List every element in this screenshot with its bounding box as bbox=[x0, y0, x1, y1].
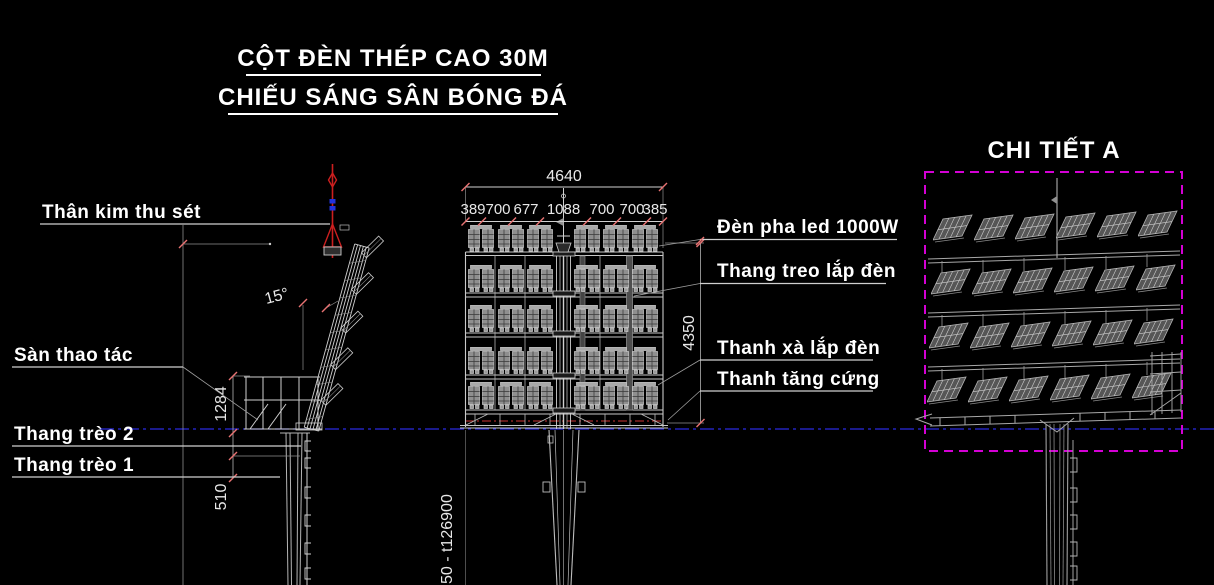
detail-panel-grid bbox=[927, 211, 1177, 404]
dim-seg-700a: 700 bbox=[485, 201, 510, 218]
dim-seg-677: 677 bbox=[513, 201, 538, 218]
label-hanging-ladder: Thang treo lắp đèn bbox=[717, 260, 896, 282]
front-elevation-view: 4640 389 700 677 1088 700 700 385 bbox=[439, 168, 899, 585]
cad-drawing-page: CỘT ĐÈN THÉP CAO 30M CHIẾU SÁNG SÂN BÓNG… bbox=[0, 0, 1214, 585]
dim-510: 510 bbox=[213, 484, 230, 511]
dim-1284: 1284 bbox=[213, 386, 230, 422]
dim-4350: 4350 bbox=[681, 315, 698, 351]
detail-a-view: CHI TIẾT A bbox=[916, 136, 1182, 585]
left-elevation-view: 1284 510 15° Thân kim thu sét Sàn thao t… bbox=[12, 164, 384, 585]
label-ladder-2: Thang trèo 2 bbox=[14, 424, 134, 445]
dim-seg-1088: 1088 bbox=[547, 201, 580, 218]
center-mast bbox=[553, 188, 575, 429]
lightning-rod bbox=[324, 164, 350, 258]
segment-dim-texts: 389 700 677 1088 700 700 385 bbox=[460, 201, 667, 218]
pole-front-lower bbox=[466, 430, 586, 585]
dim-4640: 4640 bbox=[546, 168, 582, 185]
label-lightning-rod: Thân kim thu sét bbox=[42, 202, 201, 223]
title-line2: CHIẾU SÁNG SÂN BÓNG ĐÁ bbox=[218, 83, 568, 111]
height-dimension: 4350 bbox=[665, 239, 705, 427]
mast-antenna bbox=[556, 188, 571, 252]
title-line1: CỘT ĐÈN THÉP CAO 30M bbox=[237, 44, 549, 72]
label-ladder-1: Thang trèo 1 bbox=[14, 455, 134, 476]
label-crossbar: Thanh xà lắp đèn bbox=[717, 337, 880, 359]
drawing-canvas: CỘT ĐÈN THÉP CAO 30M CHIẾU SÁNG SÂN BÓNG… bbox=[0, 0, 1214, 585]
ladder-brackets bbox=[305, 441, 311, 579]
drawing-title: CỘT ĐÈN THÉP CAO 30M CHIẾU SÁNG SÂN BÓNG… bbox=[218, 44, 568, 114]
pole-spec-note: 50 - t126900 bbox=[439, 494, 456, 584]
label-stiffener: Thanh tăng cứng bbox=[717, 369, 880, 390]
dim-seg-385: 385 bbox=[642, 201, 667, 218]
left-labels: Thân kim thu sét Sàn thao tác Thang trèo… bbox=[12, 202, 330, 477]
detail-pole-lower bbox=[1046, 424, 1077, 585]
dim-seg-700b: 700 bbox=[589, 201, 614, 218]
dim-seg-389: 389 bbox=[460, 201, 485, 218]
dim-seg-700c: 700 bbox=[619, 201, 644, 218]
base-truss bbox=[466, 414, 663, 426]
tilted-light-rack bbox=[304, 230, 384, 434]
label-platform: Sàn thao tác bbox=[14, 345, 133, 366]
label-floodlight: Đèn pha led 1000W bbox=[717, 217, 899, 238]
left-dimensions: 1284 510 15° bbox=[179, 225, 338, 585]
right-labels: Đèn pha led 1000W Thang treo lắp đèn Tha… bbox=[634, 217, 899, 420]
dim-15deg: 15° bbox=[263, 285, 291, 308]
detail-a-title: CHI TIẾT A bbox=[987, 136, 1120, 164]
